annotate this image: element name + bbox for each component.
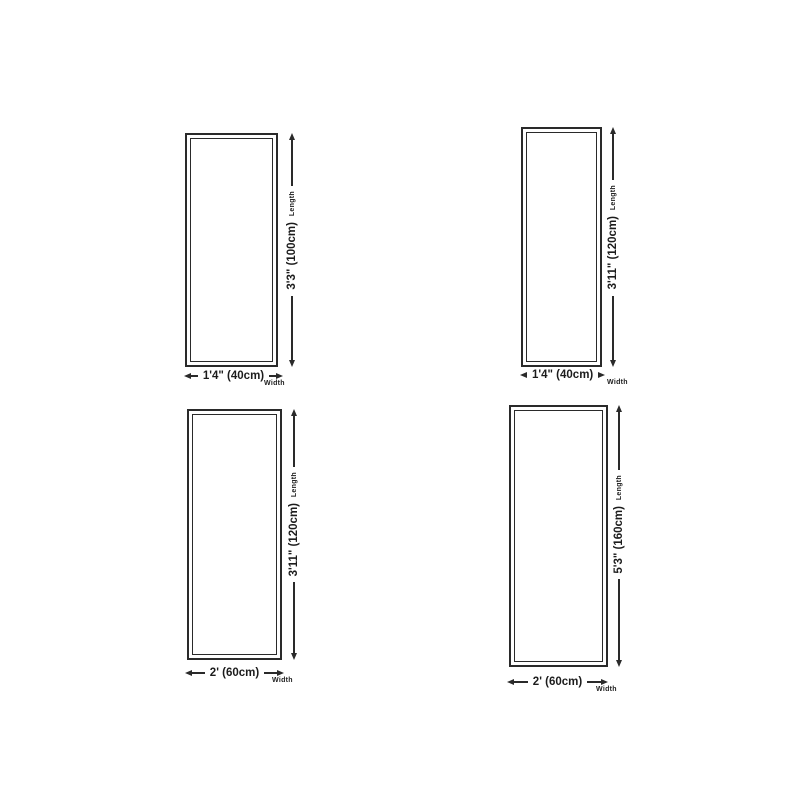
dimension-line bbox=[191, 375, 198, 377]
length-value-label: 3'11" (120cm) bbox=[607, 216, 619, 289]
length-value-label: 3'3" (100cm) bbox=[286, 222, 298, 290]
rug-outline bbox=[509, 405, 608, 667]
size-chart-canvas: Length 3'3" (100cm) 1'4" (40cm) Width Le… bbox=[0, 0, 800, 800]
dimension-line bbox=[612, 296, 614, 360]
width-caption: Width bbox=[272, 677, 293, 684]
rug-outline bbox=[187, 409, 282, 660]
arrow-up-icon bbox=[616, 405, 622, 412]
arrow-left-icon bbox=[507, 679, 514, 685]
rug-inner-outline bbox=[514, 410, 603, 662]
arrow-left-icon bbox=[520, 372, 527, 378]
dimension-line bbox=[291, 140, 293, 186]
length-value-label: 3'11" (120cm) bbox=[288, 503, 300, 576]
dimension-line bbox=[264, 672, 277, 674]
length-dimension: Length 3'11" (120cm) bbox=[286, 409, 302, 660]
width-dimension: 2' (60cm) bbox=[507, 676, 608, 688]
rug-outline bbox=[521, 127, 602, 367]
arrow-right-icon bbox=[598, 372, 605, 378]
length-caption: Length bbox=[616, 475, 623, 500]
dimension-line bbox=[618, 579, 620, 660]
length-value-label: 5'3" (160cm) bbox=[613, 506, 625, 574]
dimension-line bbox=[291, 296, 293, 360]
dimension-line bbox=[293, 582, 295, 653]
width-value-label: 2' (60cm) bbox=[210, 667, 259, 679]
arrow-right-icon bbox=[277, 670, 284, 676]
dimension-line bbox=[612, 134, 614, 180]
arrow-right-icon bbox=[276, 373, 283, 379]
rug-outline bbox=[185, 133, 278, 367]
arrow-down-icon bbox=[610, 360, 616, 367]
rug-inner-outline bbox=[192, 414, 277, 655]
length-caption: Length bbox=[610, 185, 617, 210]
size-diagram-60x120: Length 3'11" (120cm) 2' (60cm) Width bbox=[187, 409, 282, 660]
width-value-label: 1'4" (40cm) bbox=[532, 369, 593, 381]
width-value-label: 2' (60cm) bbox=[533, 676, 582, 688]
dimension-line bbox=[269, 375, 276, 377]
width-dimension: 2' (60cm) bbox=[185, 667, 284, 679]
rug-inner-outline bbox=[190, 138, 273, 362]
arrow-down-icon bbox=[291, 653, 297, 660]
length-dimension: Length 5'3" (160cm) bbox=[611, 405, 627, 667]
width-dimension: 1'4" (40cm) bbox=[520, 369, 598, 381]
length-caption: Length bbox=[289, 191, 296, 216]
arrow-up-icon bbox=[610, 127, 616, 134]
length-dimension: Length 3'11" (120cm) bbox=[605, 127, 621, 367]
arrow-right-icon bbox=[601, 679, 608, 685]
size-diagram-40x120: Length 3'11" (120cm) 1'4" (40cm) Width bbox=[521, 127, 602, 367]
size-diagram-60x160: Length 5'3" (160cm) 2' (60cm) Width bbox=[509, 405, 608, 667]
length-dimension: Length 3'3" (100cm) bbox=[284, 133, 300, 367]
dimension-line bbox=[618, 412, 620, 470]
dimension-line bbox=[293, 416, 295, 467]
arrow-down-icon bbox=[616, 660, 622, 667]
dimension-line bbox=[587, 681, 601, 683]
dimension-line bbox=[514, 681, 528, 683]
dimension-line bbox=[192, 672, 205, 674]
size-diagram-40x100: Length 3'3" (100cm) 1'4" (40cm) Width bbox=[185, 133, 278, 367]
rug-inner-outline bbox=[526, 132, 597, 362]
width-value-label: 1'4" (40cm) bbox=[203, 370, 264, 382]
width-caption: Width bbox=[607, 379, 628, 386]
arrow-left-icon bbox=[185, 670, 192, 676]
length-caption: Length bbox=[291, 472, 298, 497]
arrow-up-icon bbox=[289, 133, 295, 140]
width-caption: Width bbox=[264, 380, 285, 387]
arrow-down-icon bbox=[289, 360, 295, 367]
arrow-left-icon bbox=[184, 373, 191, 379]
arrow-up-icon bbox=[291, 409, 297, 416]
width-caption: Width bbox=[596, 686, 617, 693]
